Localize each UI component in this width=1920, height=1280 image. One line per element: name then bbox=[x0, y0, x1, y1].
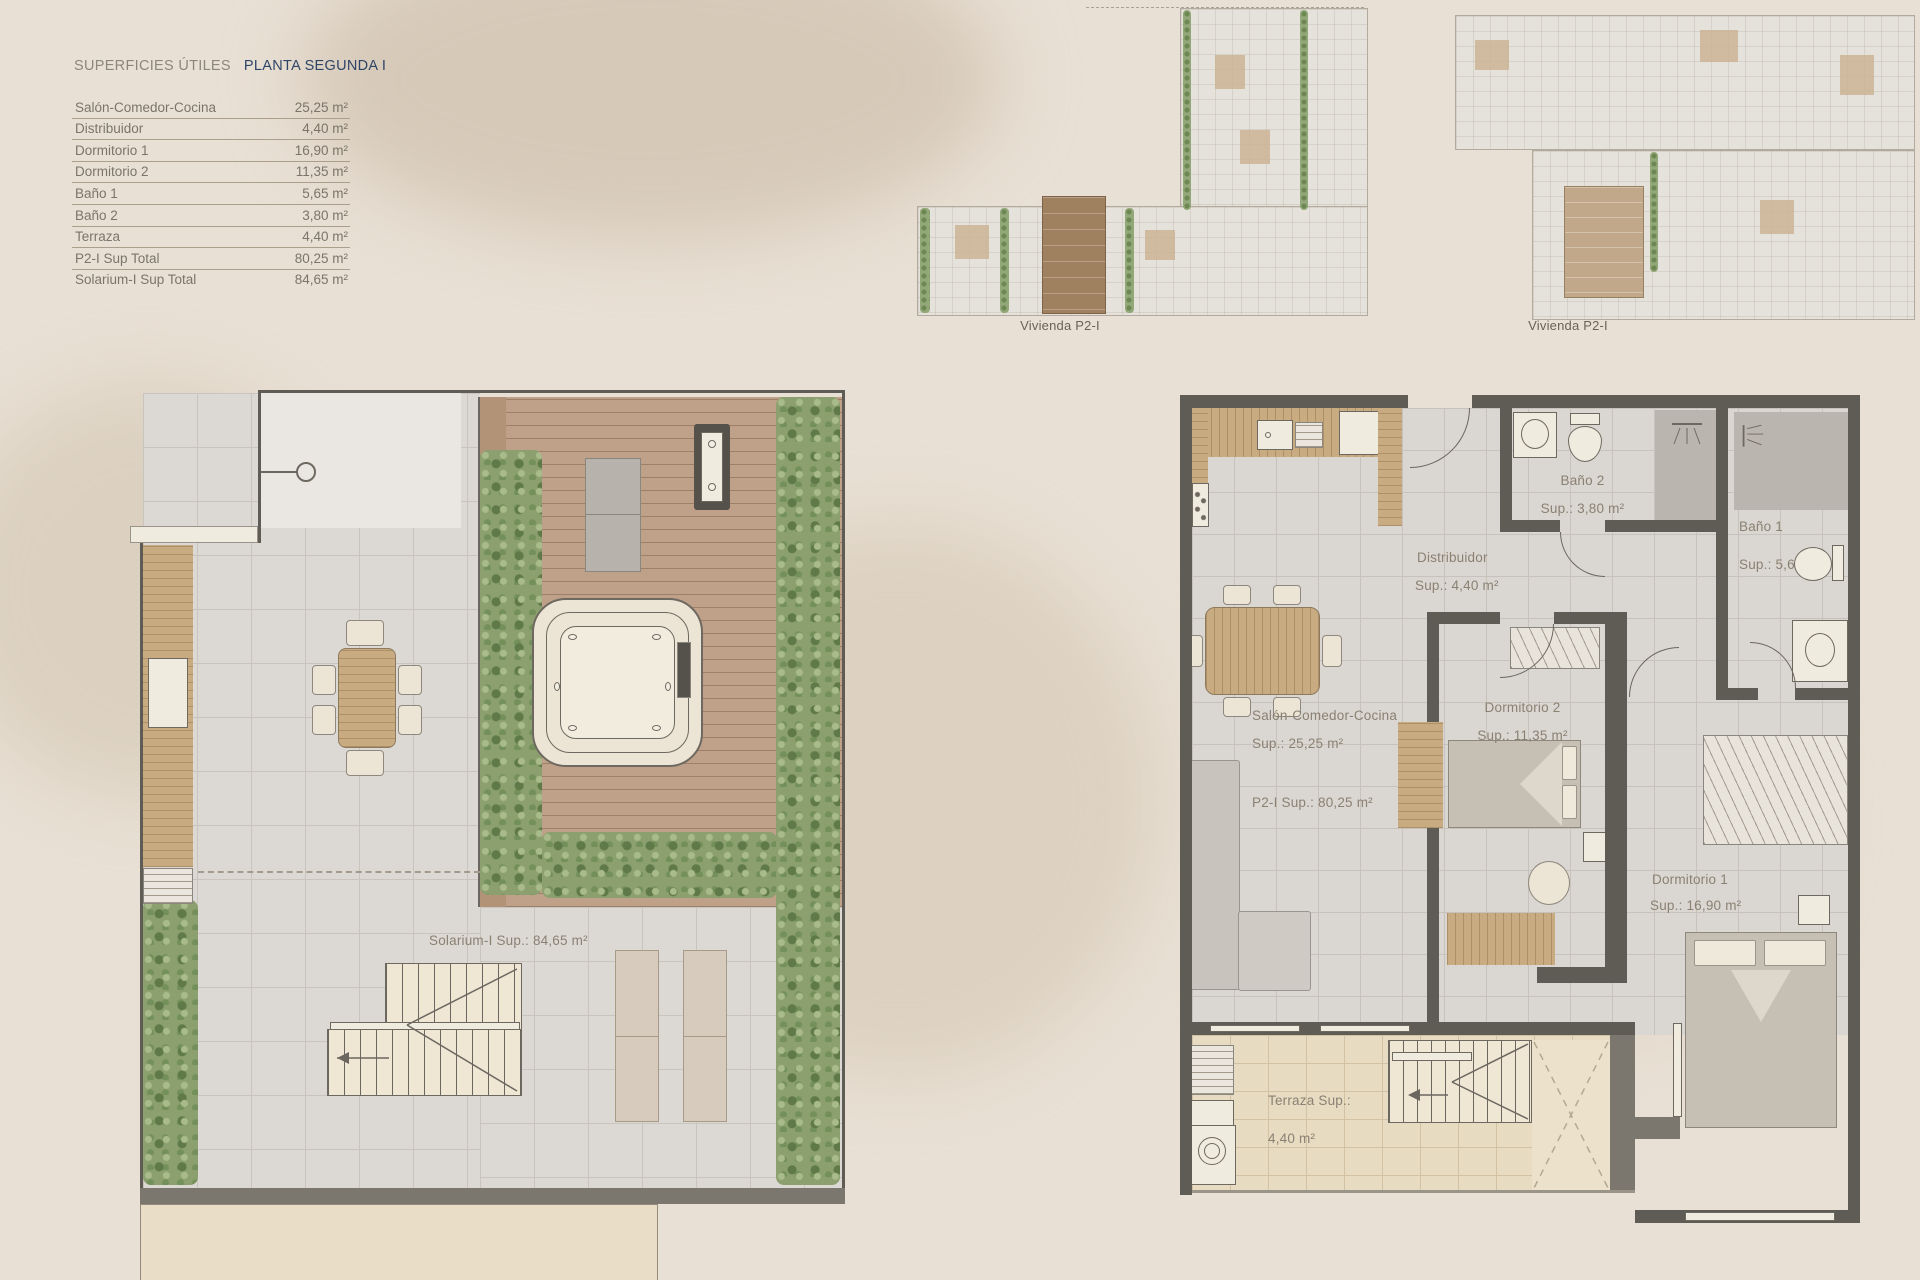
jacuzzi-jet bbox=[665, 682, 671, 691]
chair bbox=[398, 705, 422, 735]
row-label: Solarium-I Sup Total bbox=[75, 272, 196, 287]
key-plan-hedge bbox=[1000, 208, 1009, 313]
washer-drum-inner bbox=[1204, 1143, 1220, 1159]
areas-table-title-right: PLANTA SEGUNDA I bbox=[244, 58, 386, 74]
row-label: Dormitorio 1 bbox=[75, 143, 149, 158]
floorplan-sheet: SUPERFICIES ÚTILES PLANTA SEGUNDA I Saló… bbox=[0, 0, 1920, 1280]
solarium-plan: Solarium-I Sup.: 84,65 m² bbox=[130, 385, 850, 1280]
shower-head-icon bbox=[1740, 420, 1774, 450]
apartment-wall bbox=[1848, 395, 1860, 1223]
row-label: Salón-Comedor-Cocina bbox=[75, 100, 216, 115]
row-label: Baño 1 bbox=[75, 186, 118, 201]
apartment-plan: Salón-Comedor-Cocina Sup.: 25,25 m² P2-I… bbox=[1180, 395, 1860, 1240]
toilet-tank bbox=[1832, 545, 1844, 581]
jacuzzi-basin bbox=[560, 626, 675, 739]
key-plan-hedge bbox=[1650, 152, 1658, 272]
solarium-area-label: Solarium-I Sup.: 84,65 m² bbox=[429, 933, 588, 949]
key-plan-wood bbox=[1240, 130, 1270, 164]
closet bbox=[1703, 735, 1848, 845]
row-label: Baño 2 bbox=[75, 208, 118, 223]
sofa-chaise bbox=[1238, 911, 1311, 991]
outdoor-shower-stem bbox=[261, 471, 298, 473]
sofa bbox=[1186, 760, 1240, 990]
table-row: Solarium-I Sup Total 84,65 m² bbox=[72, 269, 350, 291]
kitchen-cabinet-column bbox=[1378, 408, 1402, 526]
deck-storage-split bbox=[585, 514, 641, 515]
key-plan-hedge bbox=[920, 208, 930, 313]
table-row: Baño 1 5,65 m² bbox=[72, 182, 350, 205]
shower-head-icon bbox=[1668, 420, 1706, 450]
chair bbox=[398, 665, 422, 695]
table-row: Dormitorio 1 16,90 m² bbox=[72, 139, 350, 162]
lower-floor-outline bbox=[140, 1204, 658, 1280]
apartment-wall bbox=[1605, 624, 1627, 967]
key-plan-hedge bbox=[1125, 208, 1134, 313]
sliding-door-panel bbox=[1398, 722, 1443, 828]
stairs-direction-lines bbox=[1388, 1040, 1532, 1123]
dining-table bbox=[1205, 607, 1320, 695]
row-value: 16,90 m² bbox=[295, 143, 348, 158]
key-plan-1-tower bbox=[1180, 8, 1368, 213]
salon-sup-label: Sup.: 25,25 m² bbox=[1252, 736, 1343, 752]
key-plan-1-highlight-unit bbox=[1042, 196, 1106, 314]
hob bbox=[1192, 483, 1209, 527]
window-band bbox=[1685, 1212, 1835, 1221]
row-value: 4,40 m² bbox=[302, 121, 348, 136]
key-plan-wood bbox=[1700, 30, 1738, 62]
chair bbox=[1223, 697, 1251, 717]
stairwell-wall bbox=[1610, 1035, 1635, 1190]
apartment-wall bbox=[1472, 395, 1860, 408]
chair bbox=[346, 620, 384, 646]
terraza-label: Terraza Sup.: bbox=[1268, 1093, 1351, 1109]
bbq-knob bbox=[708, 483, 716, 491]
key-plan-1-caption: Vivienda P2-I bbox=[990, 319, 1130, 334]
solarium-wall bbox=[140, 540, 143, 1190]
total-sup-label: P2-I Sup.: 80,25 m² bbox=[1252, 795, 1373, 811]
areas-table-title: SUPERFICIES ÚTILES PLANTA SEGUNDA I bbox=[74, 58, 386, 74]
wall-ledge bbox=[130, 526, 258, 543]
key-plan-wood bbox=[1475, 40, 1509, 70]
kitchen-sink bbox=[1257, 420, 1293, 450]
desk bbox=[1447, 913, 1555, 965]
apartment-wall bbox=[1554, 612, 1627, 624]
window-band bbox=[1673, 1023, 1682, 1117]
stairs-direction-lines bbox=[327, 963, 522, 1096]
row-label: P2-I Sup Total bbox=[75, 251, 160, 266]
desk-chair bbox=[1528, 861, 1570, 905]
bbq-knob bbox=[708, 440, 716, 448]
chair bbox=[346, 750, 384, 776]
apartment-wall bbox=[1537, 967, 1627, 983]
apartment-wall bbox=[1795, 688, 1860, 700]
row-label: Terraza bbox=[75, 229, 120, 244]
bano1-label: Baño 1 bbox=[1739, 519, 1783, 535]
kitchen-faucet bbox=[1265, 432, 1271, 438]
apartment-wall bbox=[1605, 520, 1728, 532]
table-row: Baño 2 3,80 m² bbox=[72, 204, 350, 227]
dining-table bbox=[338, 648, 396, 748]
fridge bbox=[1339, 411, 1379, 455]
chair bbox=[1322, 635, 1342, 667]
terraza-sup-label: 4,40 m² bbox=[1268, 1131, 1315, 1147]
apartment-wall bbox=[1427, 612, 1500, 624]
dorm2-label: Dormitorio 2 bbox=[1455, 700, 1590, 716]
key-plan-2-highlight-unit bbox=[1564, 186, 1644, 298]
toilet-bowl bbox=[1794, 547, 1832, 581]
jacuzzi-jet bbox=[652, 634, 661, 640]
apartment-wall bbox=[1716, 408, 1728, 700]
zone-dashed-line bbox=[198, 871, 480, 873]
key-plan-wood bbox=[955, 225, 989, 259]
window-band bbox=[1320, 1025, 1410, 1032]
jacuzzi-jet bbox=[568, 634, 577, 640]
window-band bbox=[1210, 1025, 1300, 1032]
key-plan-hedge bbox=[1300, 10, 1308, 210]
row-value: 3,80 m² bbox=[302, 208, 348, 223]
table-row: P2-I Sup Total 80,25 m² bbox=[72, 247, 350, 270]
apartment-wall bbox=[1500, 408, 1512, 520]
bathroom-sink-bowl bbox=[1805, 633, 1835, 667]
outdoor-shower-icon bbox=[296, 462, 316, 482]
key-plan-hedge bbox=[1183, 10, 1191, 210]
apartment-wall bbox=[1728, 688, 1758, 700]
table-row: Dormitorio 2 11,35 m² bbox=[72, 161, 350, 184]
hedge-strip bbox=[542, 832, 777, 898]
side-table bbox=[148, 658, 188, 728]
chair bbox=[1223, 585, 1251, 605]
solarium-entry-zone bbox=[261, 393, 461, 528]
distribuidor-label: Distribuidor bbox=[1417, 550, 1488, 566]
deck-storage-unit bbox=[585, 458, 641, 572]
table-row: Terraza 4,40 m² bbox=[72, 226, 350, 249]
chair bbox=[312, 705, 336, 735]
background-blotch bbox=[300, 0, 1000, 240]
dorm2-sup-label: Sup.: 11,35 m² bbox=[1455, 728, 1590, 744]
nightstand bbox=[1798, 895, 1830, 925]
key-plan-wood bbox=[1840, 55, 1874, 95]
sun-lounger-fold bbox=[683, 1036, 727, 1037]
apartment-wall bbox=[1500, 520, 1560, 532]
stairwell-wall-stub bbox=[1635, 1117, 1680, 1139]
chair bbox=[1273, 585, 1301, 605]
key-plan-wood bbox=[1145, 230, 1175, 260]
distribuidor-sup-label: Sup.: 4,40 m² bbox=[1415, 578, 1499, 594]
sun-lounger-fold bbox=[615, 1036, 659, 1037]
pillow bbox=[1694, 940, 1756, 966]
row-value: 4,40 m² bbox=[302, 229, 348, 244]
areas-table-title-left: SUPERFICIES ÚTILES bbox=[74, 58, 231, 74]
apartment-wall bbox=[1180, 395, 1408, 408]
dorm1-sup-label: Sup.: 16,90 m² bbox=[1650, 898, 1741, 914]
pillow bbox=[1764, 940, 1826, 966]
solarium-wall bbox=[842, 390, 845, 1190]
pillow bbox=[1562, 785, 1577, 819]
areas-table: SUPERFICIES ÚTILES PLANTA SEGUNDA I Saló… bbox=[72, 56, 350, 296]
row-label: Dormitorio 2 bbox=[75, 164, 149, 179]
key-plan-2-caption: Vivienda P2-I bbox=[1498, 319, 1638, 334]
jacuzzi-control-panel bbox=[677, 642, 691, 698]
row-value: 5,65 m² bbox=[302, 186, 348, 201]
solarium-wall bbox=[258, 390, 261, 543]
pillow bbox=[1562, 746, 1577, 780]
bano2-label: Baño 2 bbox=[1510, 473, 1655, 489]
kitchen-drainer bbox=[1295, 422, 1323, 448]
chair bbox=[312, 665, 336, 695]
terrace-edge bbox=[1192, 1190, 1635, 1193]
jacuzzi-jet bbox=[554, 682, 560, 691]
table-row: Distribuidor 4,40 m² bbox=[72, 118, 350, 141]
key-plan-wood bbox=[1215, 55, 1245, 89]
hedge-strip bbox=[143, 900, 198, 1185]
row-value: 84,65 m² bbox=[295, 272, 348, 287]
jacuzzi-jet bbox=[568, 725, 577, 731]
nightstand bbox=[1583, 832, 1607, 862]
row-value: 80,25 m² bbox=[295, 251, 348, 266]
key-plan-1-body bbox=[917, 206, 1368, 316]
jacuzzi-jet bbox=[652, 725, 661, 731]
grill-vent bbox=[143, 868, 193, 904]
apartment-wall bbox=[1180, 395, 1192, 1195]
hedge-strip bbox=[776, 397, 840, 1185]
bano2-sup-label: Sup.: 3,80 m² bbox=[1510, 501, 1655, 517]
row-value: 25,25 m² bbox=[295, 100, 348, 115]
table-row: Salón-Comedor-Cocina 25,25 m² bbox=[72, 96, 350, 119]
row-label: Distribuidor bbox=[75, 121, 143, 136]
salon-label: Salón-Comedor-Cocina bbox=[1252, 708, 1397, 724]
jacuzzi bbox=[532, 598, 703, 767]
key-plan-wood bbox=[1760, 200, 1794, 234]
lightwell-cross bbox=[1532, 1040, 1610, 1190]
terrace-counter bbox=[1188, 1045, 1234, 1095]
solarium-bottom-wall bbox=[140, 1188, 845, 1204]
toilet-tank bbox=[1570, 413, 1600, 425]
solarium-wall bbox=[258, 390, 845, 393]
dorm1-label: Dormitorio 1 bbox=[1652, 872, 1728, 888]
bathroom-sink-bowl bbox=[1521, 419, 1549, 449]
row-value: 11,35 m² bbox=[296, 164, 348, 179]
